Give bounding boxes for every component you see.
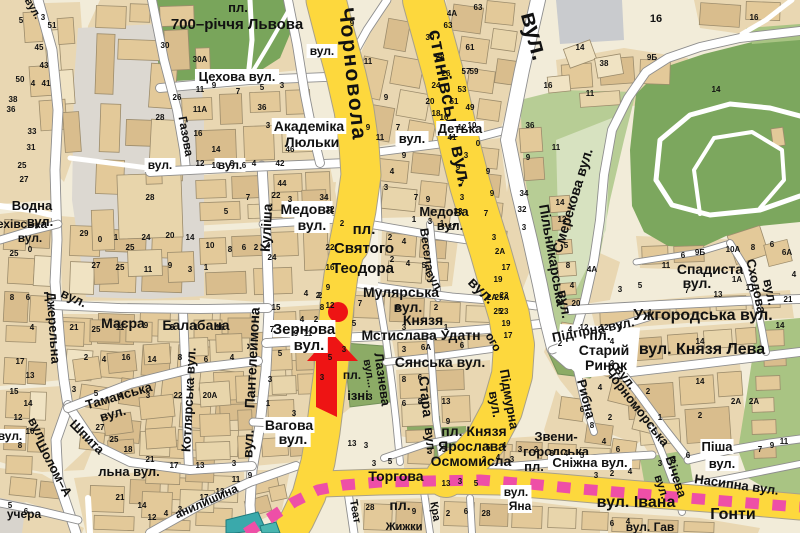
svg-text:17: 17 xyxy=(200,493,209,502)
svg-text:вул. Гав: вул. Гав xyxy=(626,520,675,533)
svg-text:12: 12 xyxy=(14,413,23,422)
svg-text:8: 8 xyxy=(418,397,423,406)
svg-text:вул.: вул. xyxy=(504,485,529,499)
svg-text:Ярослава: Ярослава xyxy=(438,438,506,454)
svg-text:31: 31 xyxy=(27,143,36,152)
svg-text:Старий: Старий xyxy=(579,342,630,358)
svg-text:Цехова вул.: Цехова вул. xyxy=(199,69,276,84)
svg-text:16: 16 xyxy=(216,323,225,332)
svg-text:22: 22 xyxy=(174,391,183,400)
svg-text:51: 51 xyxy=(450,97,459,106)
svg-text:20А: 20А xyxy=(203,391,218,400)
svg-text:5: 5 xyxy=(352,319,357,328)
svg-text:8: 8 xyxy=(18,441,23,450)
svg-text:23: 23 xyxy=(500,307,509,316)
svg-text:15: 15 xyxy=(10,387,19,396)
svg-text:пл.: пл. xyxy=(389,497,410,513)
svg-text:42: 42 xyxy=(276,159,285,168)
svg-text:10А: 10А xyxy=(726,245,741,254)
svg-text:6: 6 xyxy=(242,161,247,170)
svg-text:5: 5 xyxy=(224,207,229,216)
svg-text:7: 7 xyxy=(270,325,275,334)
svg-text:700–річчя Львова: 700–річчя Львова xyxy=(171,16,304,33)
svg-text:2: 2 xyxy=(608,413,613,422)
svg-text:вул.: вул. xyxy=(298,217,327,233)
svg-text:4: 4 xyxy=(118,391,123,400)
svg-text:4: 4 xyxy=(304,289,309,298)
svg-text:3: 3 xyxy=(170,323,175,332)
svg-text:7: 7 xyxy=(236,87,241,96)
svg-text:21: 21 xyxy=(116,493,125,502)
svg-text:вул.: вул. xyxy=(310,44,335,58)
svg-text:3: 3 xyxy=(464,151,469,160)
svg-text:4: 4 xyxy=(402,237,407,246)
svg-text:Торгова: Торгова xyxy=(368,468,423,484)
svg-text:Сянська вул.: Сянська вул. xyxy=(395,354,485,370)
svg-text:9: 9 xyxy=(412,507,417,516)
svg-text:16: 16 xyxy=(544,81,553,90)
svg-text:9: 9 xyxy=(144,321,149,330)
svg-text:5: 5 xyxy=(19,16,24,25)
svg-text:3: 3 xyxy=(518,445,523,454)
svg-text:9: 9 xyxy=(618,323,623,332)
svg-text:36: 36 xyxy=(7,105,16,114)
svg-text:25: 25 xyxy=(116,263,125,272)
svg-text:9: 9 xyxy=(402,151,407,160)
svg-text:4: 4 xyxy=(266,241,271,250)
svg-text:9: 9 xyxy=(326,283,331,292)
svg-text:37: 37 xyxy=(448,223,457,232)
svg-text:51: 51 xyxy=(48,21,57,30)
svg-text:12: 12 xyxy=(580,323,589,332)
svg-text:1: 1 xyxy=(412,215,417,224)
svg-text:9: 9 xyxy=(490,189,495,198)
svg-text:24: 24 xyxy=(268,253,277,262)
svg-text:25: 25 xyxy=(110,435,119,444)
svg-text:вул.: вул. xyxy=(399,131,426,146)
svg-text:7: 7 xyxy=(460,179,465,188)
svg-text:20: 20 xyxy=(166,231,175,240)
svg-text:6: 6 xyxy=(610,519,615,528)
svg-text:11: 11 xyxy=(196,85,205,94)
svg-text:2А: 2А xyxy=(495,247,505,256)
svg-text:2: 2 xyxy=(446,509,451,518)
svg-text:15: 15 xyxy=(272,303,281,312)
svg-text:1: 1 xyxy=(648,308,653,317)
svg-text:4: 4 xyxy=(602,437,607,446)
svg-text:3: 3 xyxy=(428,217,433,226)
svg-text:22: 22 xyxy=(272,191,281,200)
svg-text:2: 2 xyxy=(558,339,563,348)
svg-text:38: 38 xyxy=(9,95,18,104)
svg-text:13: 13 xyxy=(26,371,35,380)
svg-text:16: 16 xyxy=(194,129,203,138)
svg-text:3: 3 xyxy=(266,121,271,130)
svg-text:9: 9 xyxy=(446,417,451,426)
svg-text:36: 36 xyxy=(258,103,267,112)
svg-text:9: 9 xyxy=(456,163,461,172)
svg-text:11: 11 xyxy=(116,323,125,332)
svg-text:3: 3 xyxy=(402,345,407,354)
svg-text:14: 14 xyxy=(776,321,785,330)
svg-text:5: 5 xyxy=(580,451,585,460)
svg-text:3: 3 xyxy=(367,392,372,402)
svg-text:9: 9 xyxy=(770,441,775,450)
svg-text:4: 4 xyxy=(252,159,257,168)
svg-text:7: 7 xyxy=(396,123,401,132)
svg-text:4: 4 xyxy=(626,517,631,526)
svg-text:7: 7 xyxy=(758,445,763,454)
svg-text:16: 16 xyxy=(650,13,662,25)
svg-text:3: 3 xyxy=(458,477,463,486)
svg-text:4: 4 xyxy=(102,355,107,364)
svg-text:0: 0 xyxy=(476,139,481,148)
svg-text:11: 11 xyxy=(232,475,241,484)
svg-text:пл.: пл. xyxy=(228,0,248,15)
svg-text:4: 4 xyxy=(300,315,305,324)
svg-text:2: 2 xyxy=(314,315,319,324)
svg-text:3: 3 xyxy=(188,265,193,274)
svg-text:3: 3 xyxy=(372,459,377,468)
svg-text:12: 12 xyxy=(558,215,567,224)
svg-text:16: 16 xyxy=(750,13,759,22)
svg-text:4: 4 xyxy=(406,259,411,268)
svg-text:4: 4 xyxy=(672,455,677,464)
svg-text:Ужгородська вул.: Ужгородська вул. xyxy=(633,307,772,324)
svg-text:16: 16 xyxy=(440,113,449,122)
svg-text:8: 8 xyxy=(230,159,235,168)
svg-text:6: 6 xyxy=(26,293,31,302)
svg-text:32: 32 xyxy=(518,205,527,214)
svg-text:6: 6 xyxy=(681,251,686,260)
svg-text:6: 6 xyxy=(24,507,29,516)
svg-text:13: 13 xyxy=(442,479,451,488)
svg-text:14: 14 xyxy=(186,233,195,242)
svg-text:6А: 6А xyxy=(421,343,431,352)
svg-text:5: 5 xyxy=(396,303,401,312)
svg-text:14: 14 xyxy=(712,85,721,94)
svg-text:ізні: ізні xyxy=(347,388,369,403)
svg-text:3: 3 xyxy=(280,81,285,90)
svg-text:1: 1 xyxy=(114,233,119,242)
svg-text:33: 33 xyxy=(454,207,463,216)
svg-text:3: 3 xyxy=(178,505,183,514)
svg-text:27: 27 xyxy=(20,175,29,184)
svg-text:5: 5 xyxy=(638,281,643,290)
svg-text:63: 63 xyxy=(444,21,453,30)
svg-text:34: 34 xyxy=(520,189,529,198)
svg-text:7: 7 xyxy=(685,286,690,295)
svg-text:24: 24 xyxy=(142,233,151,242)
svg-text:3: 3 xyxy=(268,375,273,384)
svg-text:11: 11 xyxy=(780,437,789,446)
svg-text:21: 21 xyxy=(146,455,155,464)
svg-text:Академіка: Академіка xyxy=(274,118,345,134)
svg-text:13: 13 xyxy=(196,461,205,470)
svg-text:12: 12 xyxy=(458,123,467,132)
svg-text:2: 2 xyxy=(388,233,393,242)
svg-text:вул.: вул. xyxy=(294,337,325,354)
svg-text:26: 26 xyxy=(442,69,451,78)
svg-text:6: 6 xyxy=(460,341,465,350)
svg-text:7: 7 xyxy=(414,193,419,202)
svg-text:14: 14 xyxy=(148,355,157,364)
svg-text:16: 16 xyxy=(122,353,131,362)
svg-text:17: 17 xyxy=(16,357,25,366)
svg-text:3: 3 xyxy=(402,323,407,332)
svg-text:38: 38 xyxy=(600,59,609,68)
svg-text:11: 11 xyxy=(552,143,561,152)
svg-text:9Б: 9Б xyxy=(647,53,657,62)
svg-text:25А: 25А xyxy=(495,293,510,302)
svg-text:4: 4 xyxy=(568,325,573,334)
svg-text:6: 6 xyxy=(770,240,775,249)
svg-text:17: 17 xyxy=(504,331,513,340)
svg-text:46: 46 xyxy=(286,145,295,154)
svg-text:3: 3 xyxy=(492,233,497,242)
svg-text:6: 6 xyxy=(402,399,407,408)
svg-text:44: 44 xyxy=(278,179,287,188)
svg-text:18: 18 xyxy=(124,445,133,454)
svg-text:14: 14 xyxy=(696,377,705,386)
svg-text:6: 6 xyxy=(686,451,691,460)
svg-text:6: 6 xyxy=(580,405,585,414)
svg-text:Звени-: Звени- xyxy=(534,429,577,444)
svg-text:12: 12 xyxy=(196,159,205,168)
svg-text:6: 6 xyxy=(204,355,209,364)
svg-text:21: 21 xyxy=(784,295,793,304)
svg-text:2: 2 xyxy=(254,243,259,252)
svg-text:2: 2 xyxy=(84,353,89,362)
svg-text:12: 12 xyxy=(148,513,157,522)
svg-text:11: 11 xyxy=(662,261,671,270)
svg-text:13: 13 xyxy=(348,439,357,448)
svg-text:8: 8 xyxy=(566,261,571,270)
svg-text:1: 1 xyxy=(204,263,209,272)
svg-text:19: 19 xyxy=(494,275,503,284)
svg-text:36: 36 xyxy=(526,121,535,130)
svg-text:3: 3 xyxy=(522,223,527,232)
svg-text:Жижки: Жижки xyxy=(385,521,423,533)
svg-text:Святого: Святого xyxy=(334,240,394,257)
svg-text:11: 11 xyxy=(376,133,385,142)
svg-text:Теодора: Теодора xyxy=(332,260,395,277)
svg-text:Мулярська: Мулярська xyxy=(363,284,439,300)
svg-text:4: 4 xyxy=(230,353,235,362)
svg-text:5: 5 xyxy=(474,479,479,488)
svg-text:4: 4 xyxy=(628,467,633,476)
svg-text:пл.: пл. xyxy=(524,459,544,474)
svg-text:14: 14 xyxy=(696,337,705,346)
svg-text:25: 25 xyxy=(92,325,101,334)
svg-text:8: 8 xyxy=(10,293,15,302)
svg-text:2А: 2А xyxy=(731,397,741,406)
svg-text:4: 4 xyxy=(792,270,797,279)
svg-text:Піша: Піша xyxy=(701,439,733,454)
svg-text:8: 8 xyxy=(228,245,233,254)
svg-text:6: 6 xyxy=(616,445,621,454)
svg-text:53: 53 xyxy=(458,85,467,94)
svg-text:0: 0 xyxy=(98,235,103,244)
svg-text:8: 8 xyxy=(178,353,183,362)
svg-text:4: 4 xyxy=(502,441,507,450)
svg-text:3: 3 xyxy=(594,471,599,480)
svg-text:4: 4 xyxy=(31,79,36,88)
svg-text:9: 9 xyxy=(350,19,355,28)
svg-text:8: 8 xyxy=(590,421,595,430)
svg-text:28: 28 xyxy=(146,193,155,202)
svg-text:25: 25 xyxy=(10,249,19,258)
svg-text:1: 1 xyxy=(440,219,445,228)
svg-text:13: 13 xyxy=(714,290,723,299)
svg-text:9: 9 xyxy=(486,167,491,176)
svg-text:2А: 2А xyxy=(749,397,759,406)
svg-text:4: 4 xyxy=(496,453,501,462)
svg-text:2: 2 xyxy=(610,359,615,368)
svg-text:16: 16 xyxy=(326,263,335,272)
svg-text:11А: 11А xyxy=(193,105,207,114)
svg-text:1А: 1А xyxy=(732,275,742,284)
svg-text:4А: 4А xyxy=(587,265,597,274)
svg-text:Гонти: Гонти xyxy=(710,506,755,523)
svg-text:3: 3 xyxy=(618,285,623,294)
svg-text:2: 2 xyxy=(646,387,651,396)
svg-text:28: 28 xyxy=(482,509,491,518)
svg-text:9: 9 xyxy=(248,471,253,480)
svg-text:3: 3 xyxy=(364,441,369,450)
svg-text:вул.: вул. xyxy=(279,431,308,447)
svg-text:вул.: вул. xyxy=(709,456,736,471)
svg-text:2: 2 xyxy=(390,255,395,264)
svg-text:4: 4 xyxy=(564,449,569,458)
svg-text:14: 14 xyxy=(576,43,585,52)
svg-text:5: 5 xyxy=(260,83,265,92)
svg-text:1: 1 xyxy=(266,399,271,408)
svg-text:17: 17 xyxy=(170,461,179,470)
svg-text:3: 3 xyxy=(460,193,465,202)
svg-text:33: 33 xyxy=(28,127,37,136)
svg-text:4: 4 xyxy=(164,509,169,518)
svg-text:11: 11 xyxy=(586,89,595,98)
svg-text:3: 3 xyxy=(550,449,555,458)
svg-text:11: 11 xyxy=(364,57,373,66)
svg-text:9: 9 xyxy=(384,93,389,102)
svg-text:43: 43 xyxy=(40,61,49,70)
svg-text:6: 6 xyxy=(418,373,423,382)
svg-text:3: 3 xyxy=(72,385,77,394)
svg-text:34: 34 xyxy=(320,193,329,202)
svg-text:32: 32 xyxy=(326,205,335,214)
svg-text:9: 9 xyxy=(366,123,371,132)
svg-text:0: 0 xyxy=(28,245,33,254)
svg-text:14: 14 xyxy=(556,198,565,207)
svg-text:29: 29 xyxy=(80,229,89,238)
svg-text:27: 27 xyxy=(96,423,105,432)
svg-text:вул.: вул. xyxy=(148,158,173,172)
svg-text:20: 20 xyxy=(426,97,435,106)
svg-text:26: 26 xyxy=(173,93,182,102)
svg-text:пл.: пл. xyxy=(343,368,361,382)
svg-text:50: 50 xyxy=(16,75,25,84)
svg-text:пл. Князя: пл. Князя xyxy=(441,423,506,439)
svg-text:4: 4 xyxy=(598,383,603,392)
svg-text:14: 14 xyxy=(138,501,147,510)
svg-text:1: 1 xyxy=(444,323,449,332)
svg-text:13: 13 xyxy=(216,487,225,496)
svg-text:5: 5 xyxy=(278,349,283,358)
svg-text:9: 9 xyxy=(526,153,531,162)
svg-text:13: 13 xyxy=(442,397,451,406)
svg-text:3: 3 xyxy=(41,13,46,22)
svg-text:5: 5 xyxy=(564,241,569,250)
svg-text:1: 1 xyxy=(746,283,751,292)
svg-text:пл.: пл. xyxy=(353,221,376,238)
svg-text:3: 3 xyxy=(384,183,389,192)
svg-text:63: 63 xyxy=(474,3,483,12)
svg-text:59: 59 xyxy=(470,67,479,76)
svg-text:9: 9 xyxy=(212,81,217,90)
svg-text:вул.: вул. xyxy=(239,429,256,458)
svg-text:11: 11 xyxy=(304,329,313,338)
svg-text:7: 7 xyxy=(246,193,251,202)
svg-text:24: 24 xyxy=(432,81,441,90)
svg-text:11: 11 xyxy=(144,265,153,274)
svg-text:5: 5 xyxy=(422,261,427,270)
svg-text:3: 3 xyxy=(342,345,347,354)
svg-text:8: 8 xyxy=(320,303,325,312)
svg-text:2: 2 xyxy=(340,219,345,228)
svg-text:2: 2 xyxy=(534,445,539,454)
svg-text:22: 22 xyxy=(326,243,335,252)
svg-text:41: 41 xyxy=(42,79,51,88)
svg-text:30: 30 xyxy=(426,33,435,42)
svg-text:5: 5 xyxy=(328,353,333,362)
svg-text:10: 10 xyxy=(26,427,35,436)
svg-text:3: 3 xyxy=(428,447,433,456)
svg-text:3: 3 xyxy=(232,459,237,468)
svg-text:6: 6 xyxy=(242,243,247,252)
svg-text:6: 6 xyxy=(464,507,469,516)
svg-text:3: 3 xyxy=(510,455,515,464)
svg-text:4А: 4А xyxy=(447,9,457,18)
svg-text:Князя: Князя xyxy=(403,312,443,328)
svg-text:25: 25 xyxy=(126,243,135,252)
svg-text:3: 3 xyxy=(288,195,293,204)
svg-text:61: 61 xyxy=(466,43,475,52)
svg-text:1: 1 xyxy=(658,413,663,422)
svg-text:4: 4 xyxy=(390,167,395,176)
svg-text:4: 4 xyxy=(570,281,575,290)
svg-text:Ринок: Ринок xyxy=(585,357,628,373)
svg-text:10: 10 xyxy=(212,161,221,170)
svg-text:2: 2 xyxy=(434,303,439,312)
svg-text:4: 4 xyxy=(610,337,615,346)
svg-text:17: 17 xyxy=(502,263,511,272)
svg-text:3: 3 xyxy=(292,409,297,418)
svg-text:28: 28 xyxy=(366,503,375,512)
svg-text:3: 3 xyxy=(146,391,151,400)
svg-text:21: 21 xyxy=(70,323,79,332)
svg-text:5: 5 xyxy=(94,389,99,398)
svg-text:5: 5 xyxy=(8,501,13,510)
svg-text:Яна: Яна xyxy=(509,499,532,513)
svg-text:8: 8 xyxy=(751,243,756,252)
svg-text:1: 1 xyxy=(194,323,199,332)
svg-text:25: 25 xyxy=(18,161,27,170)
svg-text:льна вул.: льна вул. xyxy=(98,464,160,479)
svg-text:20: 20 xyxy=(572,299,581,308)
svg-text:14: 14 xyxy=(24,399,33,408)
